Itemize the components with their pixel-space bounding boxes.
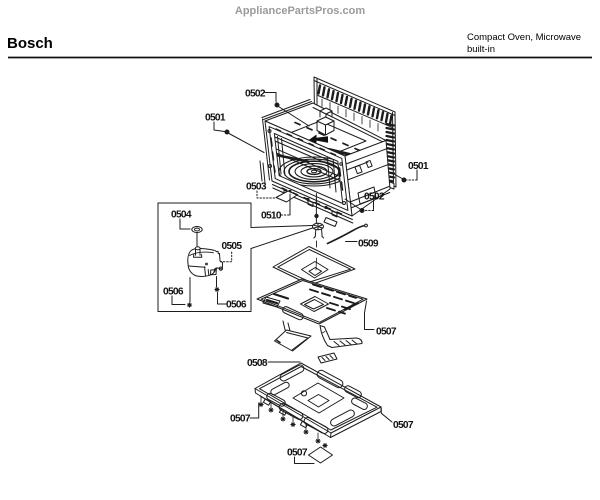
svg-text:0507: 0507	[376, 327, 397, 338]
svg-text:0503: 0503	[246, 182, 267, 193]
svg-text:0507: 0507	[230, 414, 251, 425]
svg-text:0506: 0506	[163, 287, 184, 298]
svg-text:0506: 0506	[226, 300, 247, 311]
svg-text:built-in: built-in	[467, 44, 495, 55]
svg-text:0501: 0501	[408, 161, 429, 172]
svg-text:0507: 0507	[287, 448, 308, 459]
svg-text:0502: 0502	[245, 89, 266, 100]
svg-text:0505: 0505	[222, 241, 243, 252]
svg-text:0507: 0507	[393, 420, 414, 431]
svg-text:0501: 0501	[205, 113, 226, 124]
svg-text:0510: 0510	[261, 211, 282, 222]
svg-text:0504: 0504	[171, 210, 192, 221]
svg-text:0509: 0509	[358, 239, 379, 250]
svg-text:0508: 0508	[247, 358, 268, 369]
svg-text:Compact Oven, Microwave: Compact Oven, Microwave	[467, 32, 581, 43]
svg-text:AppliancePartsPros.com: AppliancePartsPros.com	[235, 5, 365, 17]
svg-text:Bosch: Bosch	[7, 35, 53, 52]
svg-text:0502: 0502	[364, 192, 385, 203]
